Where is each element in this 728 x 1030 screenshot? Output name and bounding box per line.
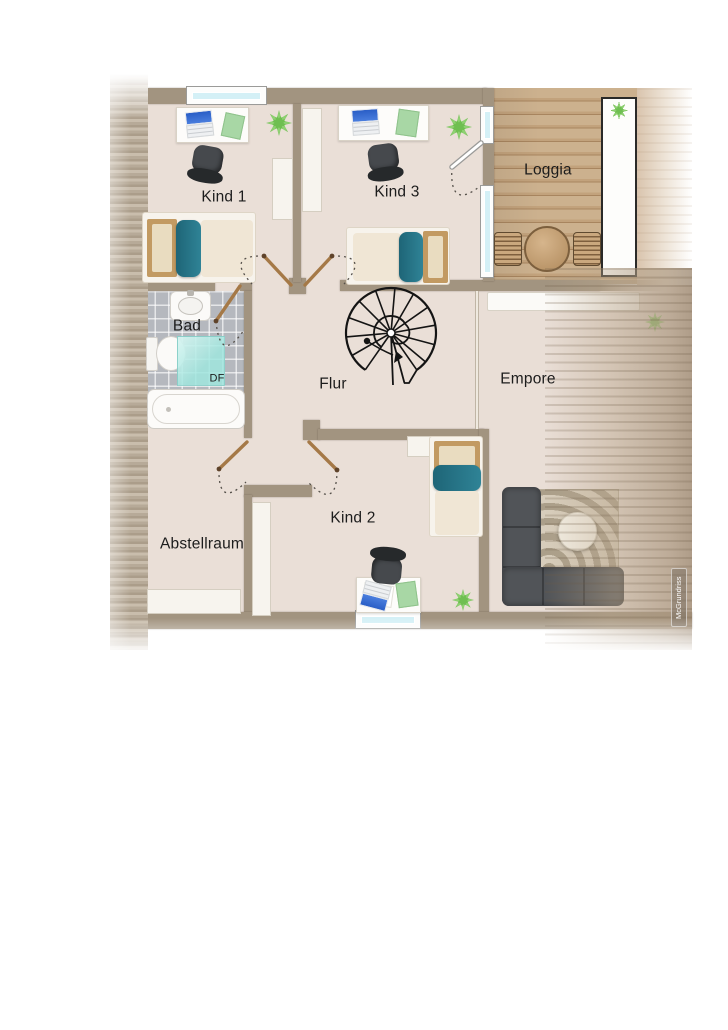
room-label-kind2: Kind 2: [330, 510, 375, 526]
roof-slope-right: [545, 268, 692, 650]
floor-plan-page: Kind 1 Kind 3 Loggia Bad DF Flur Empore …: [0, 0, 728, 1030]
room-label-bad: Bad: [173, 318, 201, 334]
wardrobe: [272, 158, 293, 220]
plant-icon: [452, 589, 474, 611]
room-label-kind3: Kind 3: [374, 184, 419, 200]
wardrobe: [252, 502, 271, 616]
slatted-chair: [494, 232, 522, 266]
empore-railing: [475, 291, 479, 429]
room-label-kind1: Kind 1: [201, 189, 246, 205]
window-loggia-upper: [480, 106, 494, 144]
wall-kind1-kind3: [293, 104, 301, 282]
slatted-chair: [573, 232, 601, 266]
single-bed: [142, 212, 256, 283]
bottom-fade: [0, 618, 728, 666]
plant-icon: [266, 110, 292, 136]
planter: [601, 97, 637, 277]
plant-icon: [611, 102, 628, 119]
desk-pad: [395, 581, 418, 609]
wardrobe: [302, 108, 322, 212]
single-bed: [429, 436, 483, 537]
low-shelf: [147, 589, 241, 614]
wall-abstellraum-kind2: [244, 495, 252, 618]
window-glass: [192, 92, 261, 100]
office-chair: [362, 140, 405, 185]
desk-pad: [395, 109, 419, 138]
bathtub: [147, 389, 245, 429]
wall-niche: [244, 485, 312, 497]
room-label-empore: Empore: [500, 371, 555, 387]
window-loggia-lower: [480, 185, 494, 278]
roof-area-top-right: [637, 88, 692, 285]
office-chair: [185, 141, 229, 187]
window-glass: [484, 111, 491, 139]
roof-slope-left: [110, 74, 148, 650]
single-bed: [346, 227, 450, 285]
laptop: [185, 110, 215, 139]
laptop: [351, 108, 380, 136]
plant-icon: [446, 114, 472, 140]
roof-window-label: DF: [209, 374, 224, 385]
wall-bad-right: [244, 291, 252, 438]
room-label-flur: Flur: [319, 376, 347, 392]
room-label-abstellraum: Abstellraum: [160, 536, 244, 552]
round-table: [524, 226, 570, 272]
window-kind1: [186, 86, 267, 105]
window-glass: [484, 190, 491, 273]
room-label-loggia: Loggia: [524, 162, 572, 178]
